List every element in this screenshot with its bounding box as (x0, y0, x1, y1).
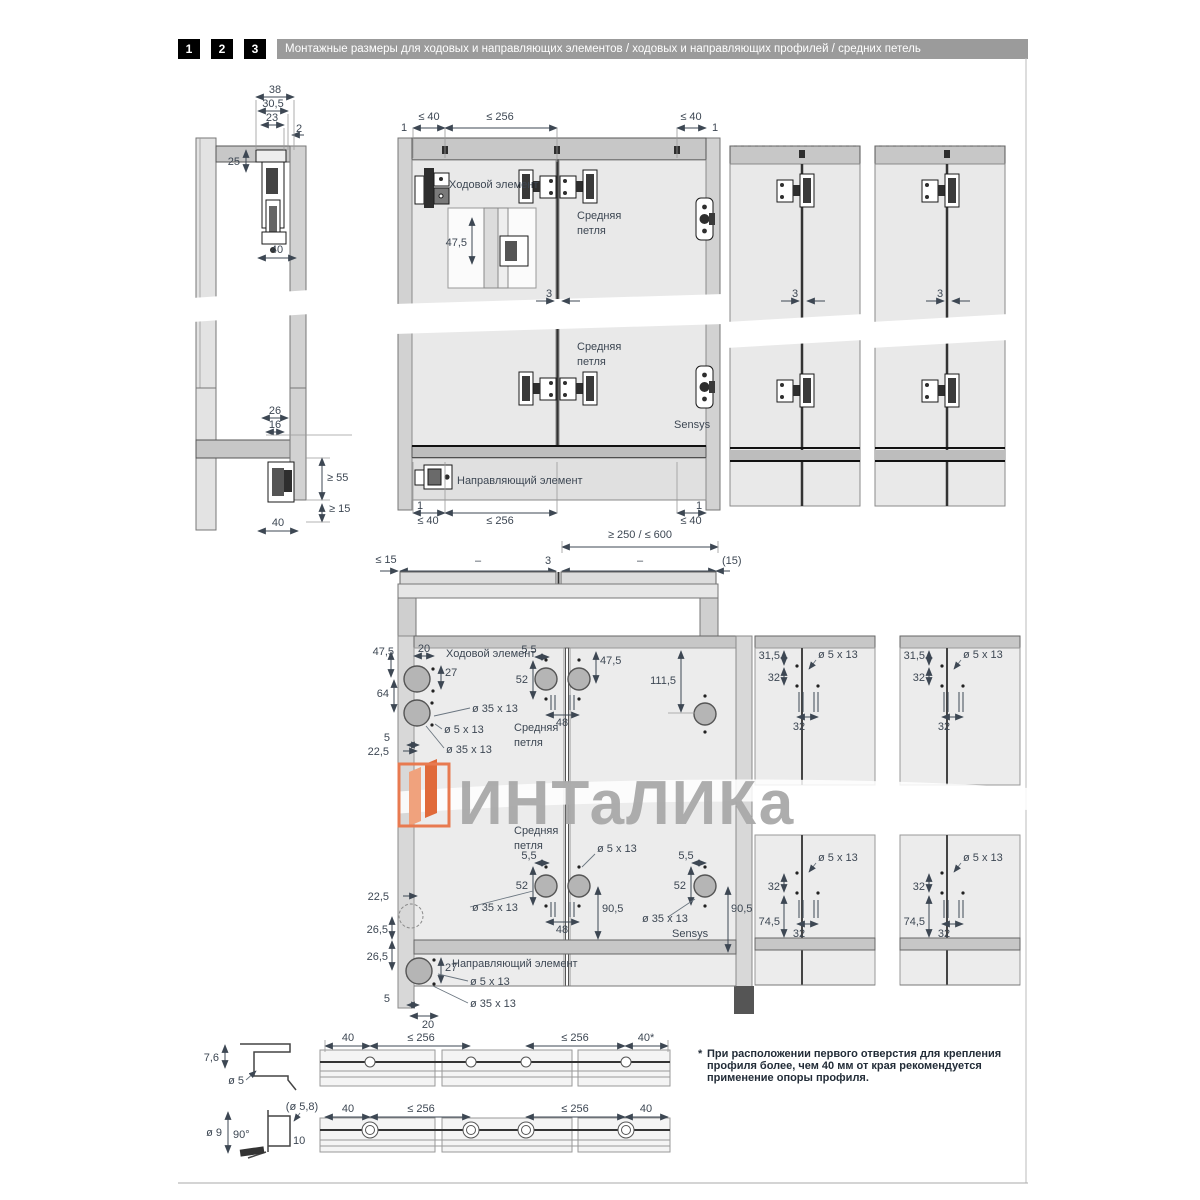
dim-5-5-c: 5,5 (678, 850, 693, 862)
front-view: 1 ≤ 40 ≤ 256 ≤ 40 1 Ходовой элемент Сред… (394, 111, 724, 553)
dim-le256-p1-right: ≤ 256 (561, 1032, 588, 1044)
dim-le15: ≤ 15 (375, 554, 396, 566)
dim-o5-8: (ø 5,8) (286, 1101, 318, 1113)
dim-le256-p2-left: ≤ 256 (407, 1103, 434, 1115)
profile-bottom: (ø 5,8) ø 9 90° 10 40 ≤ 256 ≤ 256 40 (206, 1101, 670, 1158)
label-middle-hinge-2a: Средняя (577, 341, 621, 353)
dim-40-bottom: 40 (272, 517, 284, 529)
label-middle-hinge-1b: петля (577, 225, 606, 237)
dim-90-5-b: 90,5 (731, 903, 752, 915)
dim-15-paren: (15) (722, 555, 742, 567)
dim-10: 10 (293, 1135, 305, 1147)
dim-5-5-a: 5,5 (521, 644, 536, 656)
label-o5-c: ø 5 x 13 (470, 976, 510, 988)
label-middle-hinge-1a: Средняя (577, 210, 621, 222)
dim-64: 64 (377, 688, 389, 700)
label-hinge-drill-1a: Средняя (514, 722, 558, 734)
dim-le256-bottom: ≤ 256 (486, 515, 513, 527)
dim-16: 16 (269, 419, 281, 431)
dim-ge15: ≥ 15 (329, 503, 350, 515)
dim-32-t2b: 32 (938, 721, 950, 733)
dim-26: 26 (269, 405, 281, 417)
footnote: * При расположении первого отверстия для… (698, 1048, 1001, 1084)
dim-2: 2 (296, 123, 302, 135)
dim-7-6: 7,6 (204, 1052, 219, 1064)
dim-o9: ø 9 (206, 1127, 222, 1139)
dim-5-bottom: 5 (384, 993, 390, 1005)
label-o35-a: ø 35 x 13 (472, 703, 518, 715)
dim-27-top: 27 (445, 667, 457, 679)
label-runner-element: Ходовой элемент (449, 179, 538, 191)
dim-le40-bottom-right: ≤ 40 (680, 515, 701, 527)
dim-1-top-right: 1 (712, 122, 718, 134)
dim-90-5-a: 90,5 (602, 903, 623, 915)
dim-23: 23 (266, 112, 278, 124)
left-bottom-section: 26 16 ≥ 55 ≥ 15 40 (196, 388, 352, 531)
dim-26-5-a: 26,5 (367, 924, 388, 936)
right-drill-pattern-top-2: 31,5 32 ø 5 x 13 32 (900, 636, 1020, 785)
dim-22-5-top: 22,5 (368, 746, 389, 758)
dim-1-bottom-left: 1 (417, 500, 423, 512)
dim-40-p2-left: 40 (342, 1103, 354, 1115)
label-o5-b2: ø 5 x 13 (963, 852, 1003, 864)
dim-1-bottom-right: 1 (696, 500, 702, 512)
dim-dash-right: – (637, 555, 644, 567)
dim-111-5: 111,5 (650, 675, 676, 687)
dim-le256-p2-right: ≤ 256 (561, 1103, 588, 1115)
right-drill-pattern-top-1: 31,5 32 ø 5 x 13 32 (755, 636, 875, 785)
dim-le256-top: ≤ 256 (486, 111, 513, 123)
dim-le40-top-left: ≤ 40 (418, 111, 439, 123)
dim-25: 25 (228, 156, 240, 168)
dim-5-top: 5 (384, 732, 390, 744)
dim-52-a: 52 (516, 674, 528, 686)
dim-52-b: 52 (516, 880, 528, 892)
dim-32-b1b: 32 (793, 928, 805, 940)
dim-1-top-left: 1 (401, 122, 407, 134)
dim-48-a: 48 (556, 717, 568, 729)
footnote-line-3: применение опоры профиля. (707, 1072, 869, 1084)
dim-32-b2a: 32 (913, 881, 925, 893)
left-top-section: 38 30,5 23 2 25 40 (192, 84, 310, 388)
dim-22-5-b: 22,5 (368, 891, 389, 903)
dim-52-c: 52 (674, 880, 686, 892)
label-middle-hinge-2b: петля (577, 356, 606, 368)
dim-range-250-600: ≥ 250 / ≤ 600 (608, 529, 672, 541)
dim-dash-left: – (475, 555, 482, 567)
watermark-text: ИНТаЛИКа (458, 769, 795, 838)
dim-le256-p1-left: ≤ 256 (407, 1032, 434, 1044)
dim-40-top: 40 (271, 244, 283, 256)
dim-48-b: 48 (556, 924, 568, 936)
dim-20-top: 20 (418, 643, 430, 655)
label-o5-b1: ø 5 x 13 (818, 852, 858, 864)
label-o35-d: ø 35 x 13 (470, 998, 516, 1010)
dim-90deg: 90° (233, 1129, 250, 1141)
dim-3-plan: 3 (545, 555, 551, 567)
dim-40-star: 40* (638, 1032, 655, 1044)
dim-30-5: 30,5 (262, 98, 283, 110)
dim-40-p1-left: 40 (342, 1032, 354, 1044)
dim-26-5-b: 26,5 (367, 951, 388, 963)
dim-40-p2-right: 40 (640, 1103, 652, 1115)
dim-47-5-inset: 47,5 (446, 237, 467, 249)
dim-47-5-drill-left: 47,5 (373, 646, 394, 658)
dim-38: 38 (269, 84, 281, 96)
dim-32-b1a: 32 (768, 881, 780, 893)
dim-3-gap-variant2: 3 (937, 288, 943, 300)
dim-74-5-b2: 74,5 (904, 916, 925, 928)
right-panel-variant-1: 3 (726, 146, 864, 506)
dim-20-bottom: 20 (422, 1019, 434, 1031)
label-o35-c: ø 35 x 13 (472, 902, 518, 914)
right-panel-variant-2: 3 (871, 146, 1009, 506)
technical-drawing: 38 30,5 23 2 25 40 26 (0, 0, 1200, 1200)
dim-ge55: ≥ 55 (327, 472, 348, 484)
runner-hardware-section (256, 150, 286, 253)
label-o5-t2: ø 5 x 13 (963, 649, 1003, 661)
label-sensys-drill: Sensys (672, 928, 709, 940)
label-guide-drill: Направляющий элемент (452, 958, 578, 970)
dim-32-t1b: 32 (793, 721, 805, 733)
guide-hardware-section (268, 462, 294, 502)
dim-3-gap: 3 (546, 288, 552, 300)
label-hinge-drill-1b: петля (514, 737, 543, 749)
label-o5-a: ø 5 x 13 (444, 724, 484, 736)
dim-31-5-t2: 31,5 (904, 650, 925, 662)
footnote-line-1: При расположении первого отверстия для к… (707, 1048, 1001, 1060)
dim-o5-profile: ø 5 (228, 1075, 244, 1087)
dim-31-5-t1: 31,5 (759, 650, 780, 662)
dim-3-gap-variant1: 3 (792, 288, 798, 300)
dim-74-5-b1: 74,5 (759, 916, 780, 928)
footnote-line-2: профиля более, чем 40 мм от края рекомен… (707, 1060, 982, 1072)
dim-47-5-drill-right: 47,5 (600, 655, 621, 667)
dim-32-b2b: 32 (938, 928, 950, 940)
label-sensys: Sensys (674, 419, 711, 431)
dim-le40-top-right: ≤ 40 (680, 111, 701, 123)
footnote-star: * (698, 1048, 703, 1060)
dim-5-5-b: 5,5 (521, 850, 536, 862)
right-drill-pattern-bottom-1: ø 5 x 13 32 74,5 32 (755, 835, 875, 985)
label-o5-b: ø 5 x 13 (597, 843, 637, 855)
profile-top: 7,6 ø 5 40 ≤ 256 ≤ 256 40* (204, 1032, 670, 1090)
dim-le40-bottom-left: ≤ 40 (417, 515, 438, 527)
plan-view: ≤ 15 – 3 – (15) (375, 554, 741, 640)
label-o35-e: ø 35 x 13 (642, 913, 688, 925)
dim-32-t2a: 32 (913, 672, 925, 684)
label-guide-element: Направляющий элемент (457, 475, 583, 487)
dim-27-bottom: 27 (445, 962, 457, 974)
dim-32-t1a: 32 (768, 672, 780, 684)
label-o5-t1: ø 5 x 13 (818, 649, 858, 661)
right-drill-pattern-bottom-2: ø 5 x 13 32 74,5 32 (900, 835, 1020, 985)
label-o35-b: ø 35 x 13 (446, 744, 492, 756)
catalog-page: 1 2 3 Монтажные размеры для ходовых и на… (0, 0, 1200, 1200)
